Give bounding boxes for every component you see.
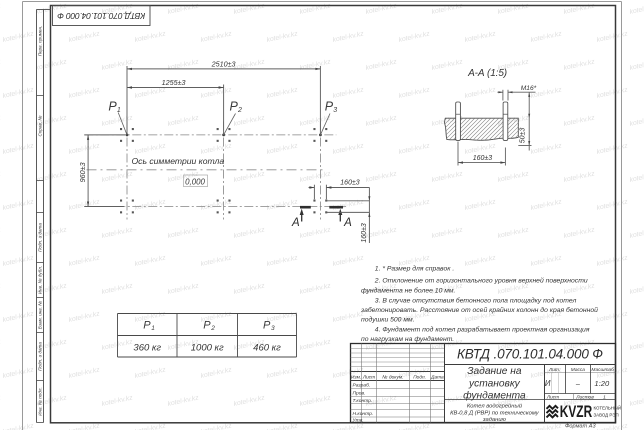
svg-text:Пров.: Пров.	[353, 390, 366, 396]
svg-text:460 кг: 460 кг	[253, 343, 281, 354]
svg-text:Дата: Дата	[430, 374, 444, 380]
svg-text:КВТД .070.101.04.000 Ф: КВТД .070.101.04.000 Ф	[457, 347, 603, 362]
svg-text:P: P	[263, 319, 271, 331]
svg-text:А-А (1:5): А-А (1:5)	[467, 68, 507, 79]
svg-text:50±3: 50±3	[519, 128, 526, 144]
svg-text:Задание на: Задание на	[467, 366, 522, 377]
svg-text:А: А	[343, 217, 352, 229]
svg-text:Лист: Лист	[546, 395, 559, 401]
svg-text:P: P	[203, 319, 211, 331]
svg-text:1000 кг: 1000 кг	[191, 343, 224, 354]
svg-text:360 кг: 360 кг	[133, 343, 161, 354]
svg-text:Инв. № подл.: Инв. № подл.	[38, 387, 43, 416]
svg-text:1: 1	[603, 395, 606, 401]
svg-text:Перв. примен.: Перв. примен.	[38, 26, 43, 57]
svg-text:забетонировать. Расстояние от: забетонировать. Расстояние от осей крайн…	[360, 306, 598, 314]
svg-text:1:20: 1:20	[594, 379, 610, 388]
svg-text:№ докум.: № докум.	[382, 374, 403, 380]
svg-text:Подп.: Подп.	[413, 374, 426, 380]
svg-text:Формат А3: Формат А3	[565, 423, 596, 429]
svg-text:И: И	[545, 379, 551, 388]
svg-text:2. Отклонение от горизонтально: 2. Отклонение от горизонтального уровня …	[374, 277, 588, 285]
svg-text:М16*: М16*	[521, 85, 537, 92]
svg-text:1: 1	[117, 107, 121, 114]
svg-text:Листов: Листов	[575, 395, 594, 401]
svg-text:заданию: заданию	[482, 417, 507, 423]
svg-text:Лит.: Лит.	[548, 367, 560, 373]
svg-text:2: 2	[210, 325, 215, 332]
svg-text:1255±3: 1255±3	[162, 78, 186, 87]
svg-text:Лист: Лист	[362, 374, 375, 380]
svg-text:3. В случае отсутствия бетонно: 3. В случае отсутствия бетонного пола пл…	[375, 296, 577, 304]
svg-text:Масштаб: Масштаб	[591, 367, 614, 373]
svg-text:КОТЕЛЬНЫЙ: КОТЕЛЬНЫЙ	[594, 406, 622, 411]
svg-text:Взам. инв. №: Взам. инв. №	[38, 301, 43, 329]
svg-text:ЗАВОД РЭП: ЗАВОД РЭП	[594, 413, 619, 418]
svg-text:КВТД.070.101.04.000 Ф: КВТД.070.101.04.000 Ф	[57, 11, 145, 21]
svg-text:Разраб.: Разраб.	[353, 382, 371, 388]
svg-text:160±3: 160±3	[473, 155, 493, 162]
svg-text:Утв.: Утв.	[353, 417, 364, 423]
svg-text:подушки 500 мм.: подушки 500 мм.	[361, 316, 415, 324]
svg-text:Подп. и дата: Подп. и дата	[38, 223, 43, 252]
svg-text:Справ. №: Справ. №	[38, 116, 43, 137]
svg-text:Т.контр.: Т.контр.	[353, 398, 373, 404]
svg-text:установку: установку	[468, 378, 521, 389]
svg-text:Изм.: Изм.	[351, 374, 361, 380]
svg-text:Н.контр.: Н.контр.	[353, 411, 374, 417]
svg-text:KVZR: KVZR	[560, 403, 593, 422]
svg-text:3: 3	[271, 325, 275, 332]
svg-text:2510±3: 2510±3	[211, 59, 236, 68]
svg-text:0,000: 0,000	[185, 178, 205, 187]
svg-text:по нагрузкам на фундамент.: по нагрузкам на фундамент.	[361, 335, 454, 343]
svg-text:2: 2	[237, 107, 242, 114]
svg-text:1: 1	[151, 325, 155, 332]
svg-text:Ось симметрии котла: Ось симметрии котла	[131, 156, 224, 166]
svg-text:фундамента не более 10 мм.: фундамента не более 10 мм.	[361, 286, 456, 294]
svg-text:КВ-0,8 Д (РВР) по техническому: КВ-0,8 Д (РВР) по техническому	[450, 410, 540, 416]
svg-text:А: А	[291, 217, 300, 229]
svg-text:960±3: 960±3	[78, 162, 87, 182]
svg-text:Масса: Масса	[571, 367, 586, 373]
svg-text:4. Фундамент под котел разраба: 4. Фундамент под котел разрабатывает про…	[375, 325, 590, 333]
svg-text:3: 3	[333, 107, 337, 114]
svg-text:1. * Размер для справок .: 1. * Размер для справок .	[375, 264, 455, 272]
svg-text:P: P	[143, 319, 151, 331]
svg-text:Инв. № дубл.: Инв. № дубл.	[38, 266, 43, 294]
svg-text:160±3: 160±3	[361, 223, 368, 243]
svg-text:Подп. и дата: Подп. и дата	[38, 342, 43, 371]
svg-text:Котел водогрейный: Котел водогрейный	[467, 402, 523, 409]
svg-text:160±3: 160±3	[340, 179, 360, 186]
